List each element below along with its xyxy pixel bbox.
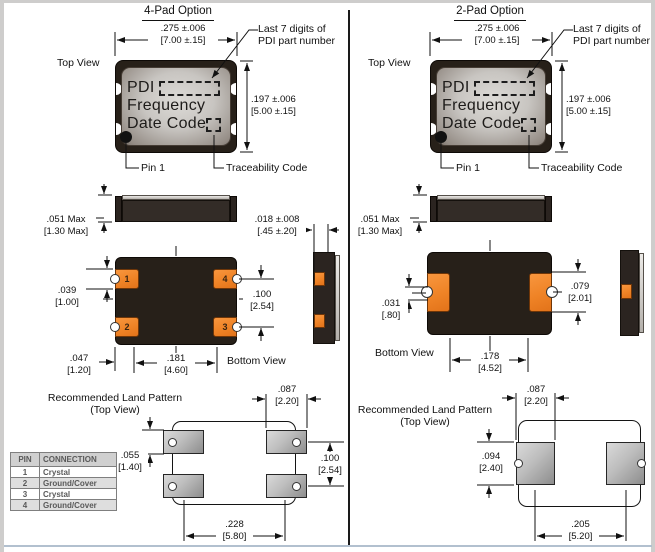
- left-traceability-label: Traceability Code: [226, 162, 307, 174]
- dim-right-thickness: .051 Max[1.30 Max]: [350, 214, 410, 238]
- table-row: 3Crystal: [11, 489, 117, 500]
- right-panel-title: 2-Pad Option: [454, 5, 526, 21]
- right-land-title: Recommended Land Pattern(Top View): [350, 404, 500, 428]
- right-top-view-label: Top View: [368, 57, 410, 69]
- left-panel-title: 4-Pad Option: [142, 5, 214, 21]
- dim-left-land-span: .228[5.80]: [216, 519, 253, 543]
- table-row: 4Ground/Cover: [11, 500, 117, 511]
- table-row: 2Ground/Cover: [11, 478, 117, 489]
- pin-table-header: PIN: [11, 453, 40, 467]
- dim-right-body-height: .197 ±.006[5.00 ±.15]: [565, 94, 612, 118]
- dim-right-land-pad-height: .094[2.40]: [473, 451, 509, 475]
- dim-left-pad-span: .181[4.60]: [157, 353, 195, 377]
- right-bottom-view-label: Bottom View: [375, 347, 434, 359]
- right-callout-line1: Last 7 digits of: [573, 23, 641, 35]
- dim-right-pad-offset: .031[.80]: [374, 298, 408, 322]
- pin-table-header: CONNECTION: [40, 453, 117, 467]
- left-land-title: Recommended Land Pattern(Top View): [40, 392, 190, 416]
- right-callout-line2: PDI part number: [573, 35, 650, 47]
- dim-left-thickness: .051 Max[1.30 Max]: [36, 214, 96, 238]
- dim-left-land-pitch: .100[2.54]: [312, 453, 348, 477]
- dim-right-land-pad-width: .087[2.20]: [518, 384, 554, 408]
- dim-left-pad-edge: .047[1.20]: [60, 353, 98, 377]
- left-callout-line2: PDI part number: [258, 35, 335, 47]
- pin-connection-table: PIN CONNECTION 1Crystal 2Ground/Cover 3C…: [10, 452, 117, 511]
- dim-left-pad-pitch: .100[2.54]: [243, 289, 281, 313]
- dim-right-body-width: .275 ±.006[7.00 ±.15]: [462, 23, 532, 47]
- dim-left-pad-height: .039[1.00]: [48, 285, 86, 309]
- datasheet-drawing: 4-Pad Option Top View PDI Frequency Date…: [0, 0, 655, 552]
- dim-right-land-span: .205[5.20]: [562, 519, 599, 543]
- dim-left-body-width: .275 ±.006[7.00 ±.15]: [148, 23, 218, 47]
- dim-right-pad-span: .178[4.52]: [471, 351, 509, 375]
- dim-left-land-pad-height: .055[1.40]: [112, 450, 148, 474]
- left-pin1-label: Pin 1: [141, 162, 165, 174]
- left-bottom-view-label: Bottom View: [227, 355, 286, 367]
- dim-right-pad-height: .079[2.01]: [562, 281, 598, 305]
- left-callout-line1: Last 7 digits of: [258, 23, 326, 35]
- left-top-view-label: Top View: [57, 57, 99, 69]
- table-row: 1Crystal: [11, 467, 117, 478]
- dim-left-standoff: .018 ±.008[.45 ±.20]: [248, 214, 306, 238]
- dim-left-body-height: .197 ±.006[5.00 ±.15]: [250, 94, 297, 118]
- right-pin1-label: Pin 1: [456, 162, 480, 174]
- right-traceability-label: Traceability Code: [541, 162, 622, 174]
- dim-left-land-pad-width: .087[2.20]: [269, 384, 305, 408]
